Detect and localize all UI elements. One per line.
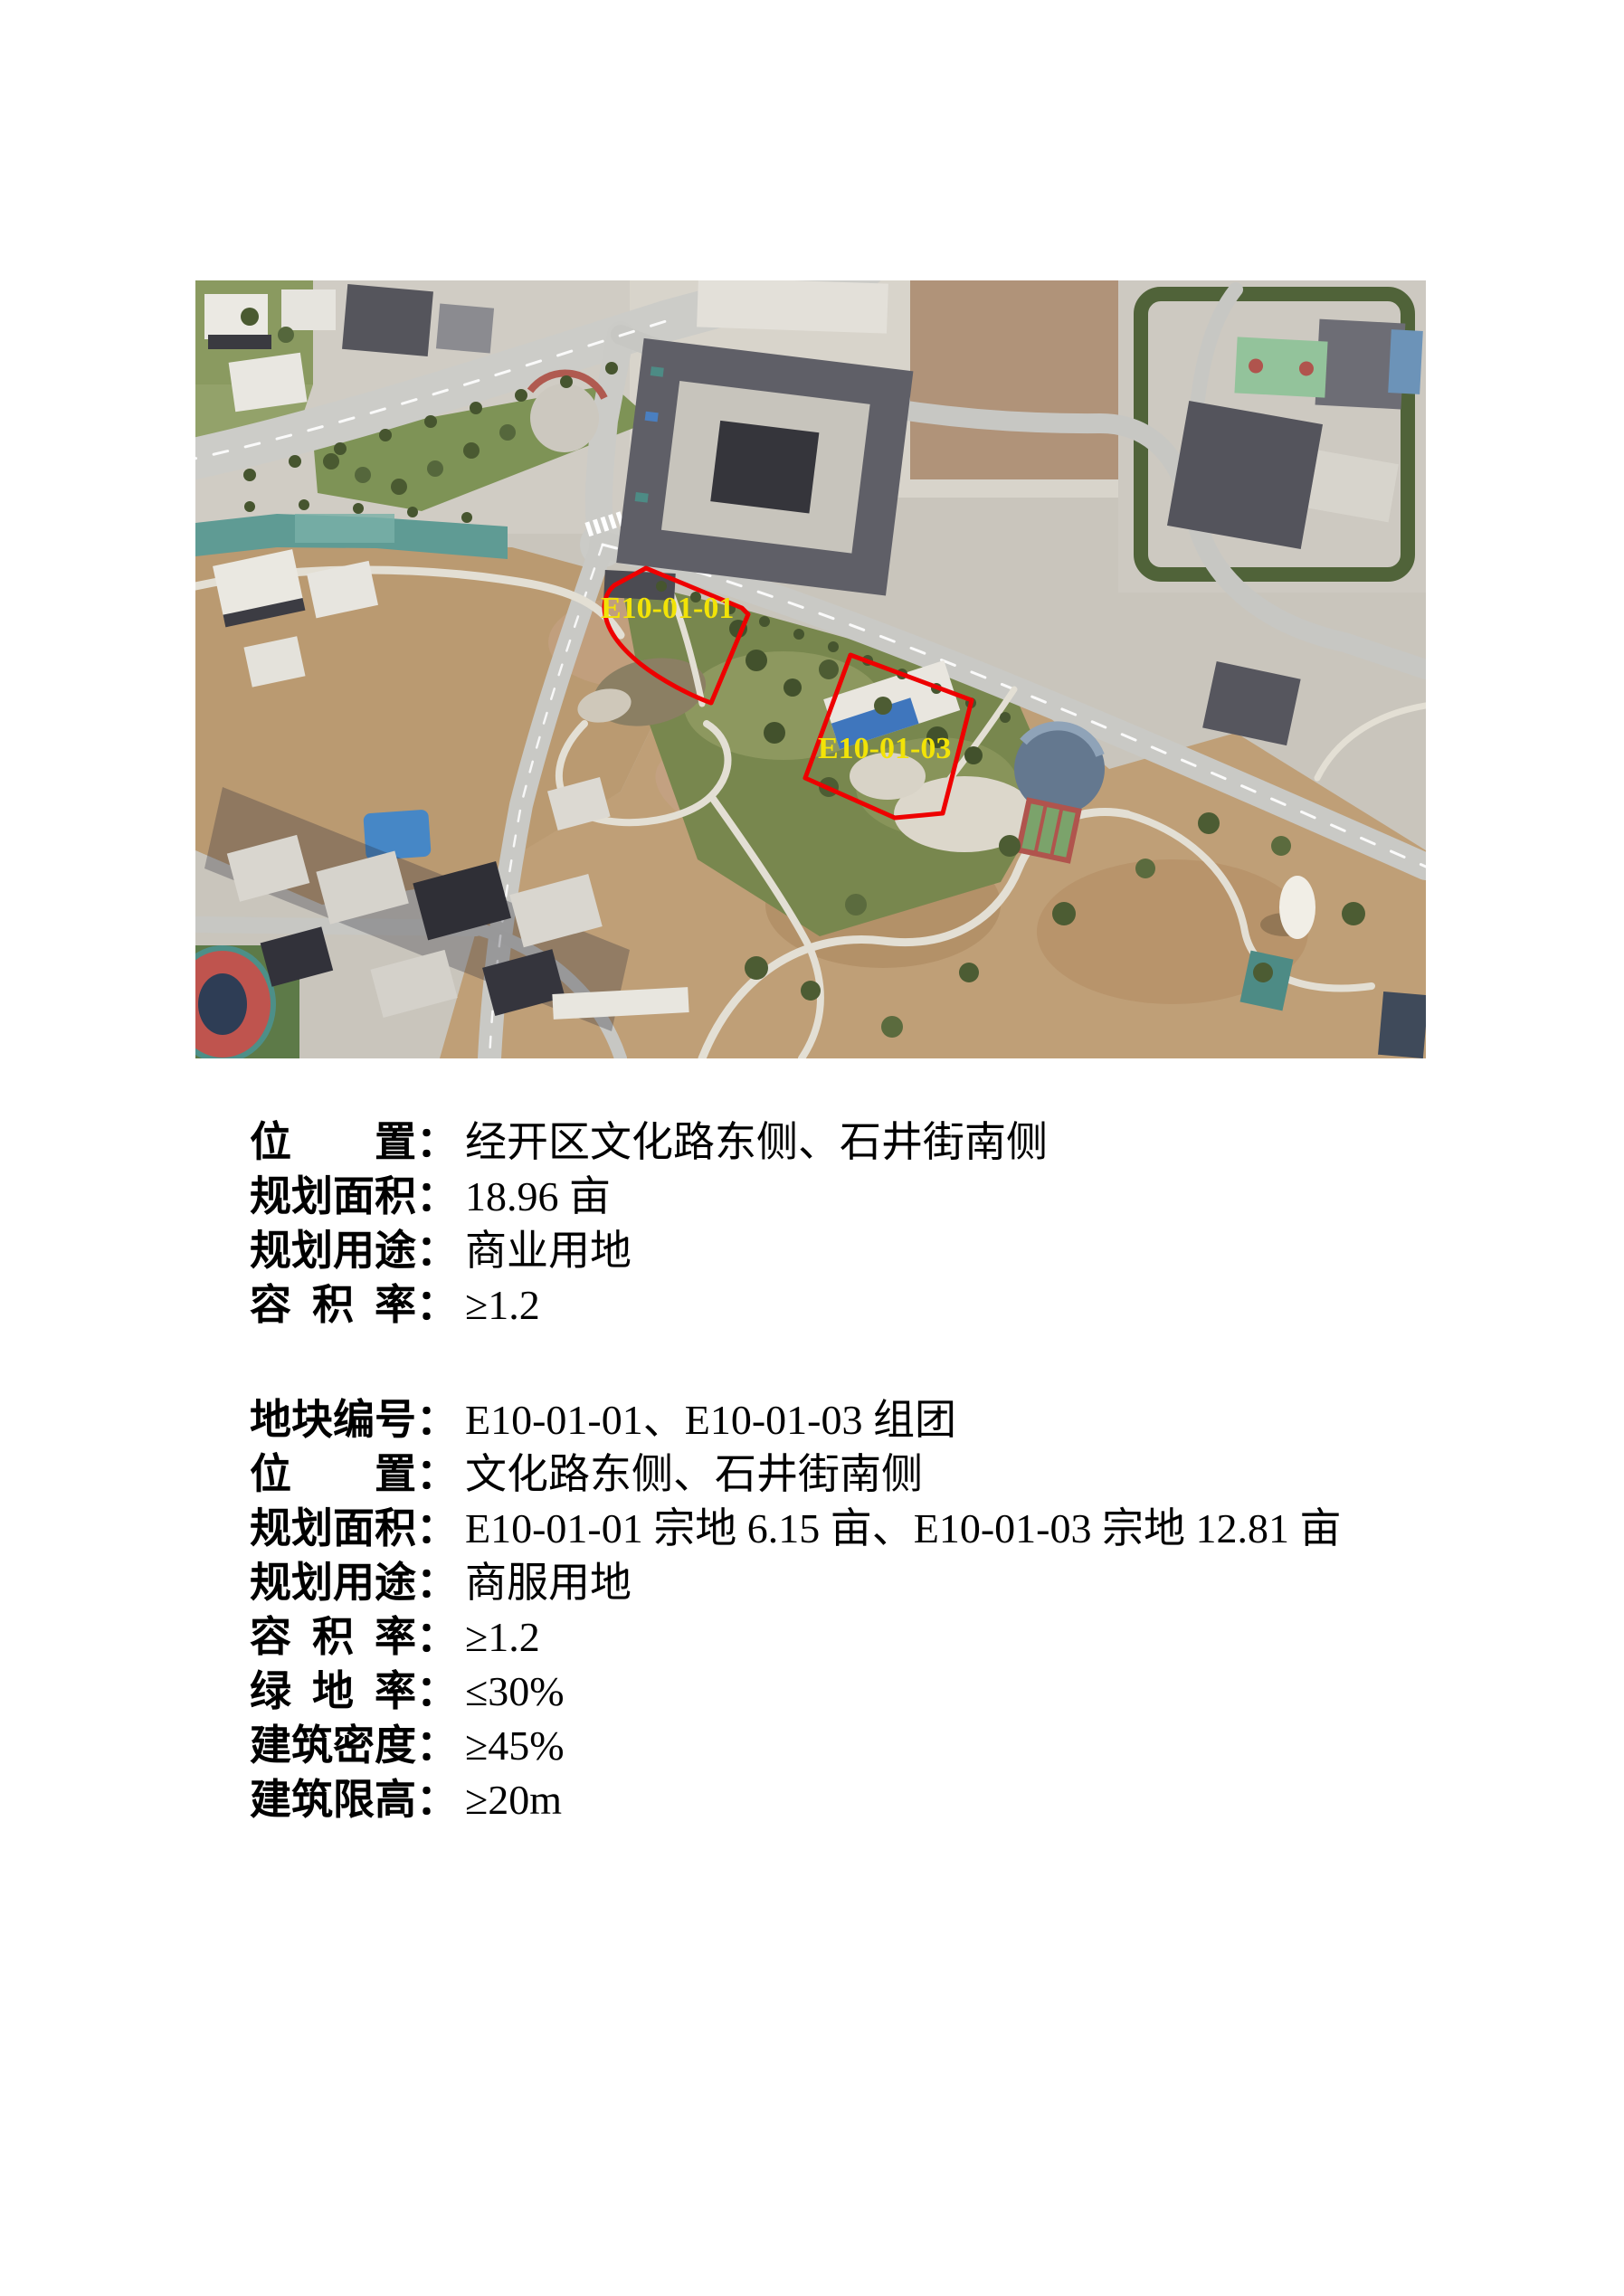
spec-colon: ： <box>416 1451 458 1497</box>
spec-row: 容积率：≥1.2 <box>250 1610 1341 1665</box>
spec-value: 经开区文化路东侧、石井街南侧 <box>465 1119 1048 1165</box>
spec-label: 规划面积 <box>250 1170 416 1224</box>
spec-colon: ： <box>416 1173 458 1219</box>
white-statue <box>1279 876 1315 939</box>
parcel-label-e10-01-01: E10-01-01 <box>601 592 734 625</box>
spec-value: ≥45% <box>465 1722 565 1769</box>
campus-building <box>1167 401 1323 549</box>
spec-row: 绿地率：≤30% <box>250 1665 1341 1719</box>
document-page: E10-01-01 E10-01-03 位置：经开区文化路东侧、石井街南侧 规划… <box>0 0 1624 2296</box>
satellite-photo: E10-01-01 E10-01-03 <box>195 280 1426 1058</box>
spec-row: 位置：经开区文化路东侧、石井街南侧 <box>250 1115 1341 1170</box>
parcel-info-text: 位置：经开区文化路东侧、石井街南侧 规划面积：18.96 亩 规划用途：商业用地… <box>250 1115 1341 1827</box>
spec-label: 容积率 <box>250 1610 416 1665</box>
spec-colon: ： <box>416 1722 458 1769</box>
spec-value: 18.96 亩 <box>465 1173 611 1219</box>
spec-colon: ： <box>416 1614 458 1660</box>
basketball-courts <box>1015 797 1082 864</box>
parcel-group-summary: 位置：经开区文化路东侧、石井街南侧 规划面积：18.96 亩 规划用途：商业用地… <box>250 1115 1341 1333</box>
spec-colon: ： <box>416 1397 458 1443</box>
spec-value: E10-01-01、E10-01-03 组团 <box>465 1397 956 1443</box>
spec-value: ≤30% <box>465 1668 565 1714</box>
spec-value: ≥1.2 <box>465 1614 540 1660</box>
spec-colon: ： <box>416 1505 458 1551</box>
spec-value: E10-01-01 宗地 6.15 亩、E10-01-03 宗地 12.81 亩 <box>465 1505 1341 1551</box>
parcel-label-e10-01-03: E10-01-03 <box>818 732 951 765</box>
spec-label: 位置 <box>250 1447 416 1502</box>
spec-row: 地块编号：E10-01-01、E10-01-03 组团 <box>250 1393 1341 1447</box>
parcel-group-detail: 地块编号：E10-01-01、E10-01-03 组团 位置：文化路东侧、石井街… <box>250 1393 1341 1827</box>
spec-colon: ： <box>416 1668 458 1714</box>
spec-label: 规划面积 <box>250 1502 416 1556</box>
spec-row: 规划面积：18.96 亩 <box>250 1170 1341 1224</box>
spec-value: 商服用地 <box>465 1560 632 1606</box>
satellite-photo-canvas: E10-01-01 E10-01-03 <box>195 280 1426 1058</box>
spec-colon: ： <box>416 1119 458 1165</box>
round-plaza <box>530 384 599 452</box>
spec-row: 容积率：≥1.2 <box>250 1278 1341 1333</box>
spec-value: ≥20m <box>465 1777 562 1823</box>
spec-label: 规划用途 <box>250 1224 416 1278</box>
spec-row: 规划面积：E10-01-01 宗地 6.15 亩、E10-01-03 宗地 12… <box>250 1502 1341 1556</box>
spec-label: 建筑密度 <box>250 1719 416 1773</box>
spec-row: 建筑限高：≥20m <box>250 1773 1341 1827</box>
construction-building <box>616 338 913 596</box>
spec-label: 规划用途 <box>250 1556 416 1610</box>
spec-label: 位置 <box>250 1115 416 1170</box>
sports-court <box>1234 337 1327 397</box>
spec-colon: ： <box>416 1777 458 1823</box>
spec-colon: ： <box>416 1282 458 1328</box>
spec-label: 绿地率 <box>250 1665 416 1719</box>
spec-row: 建筑密度：≥45% <box>250 1719 1341 1773</box>
spec-value: 商业用地 <box>465 1228 632 1274</box>
spec-row: 规划用途：商业用地 <box>250 1224 1341 1278</box>
spec-label: 建筑限高 <box>250 1773 416 1827</box>
spec-value: ≥1.2 <box>465 1282 540 1328</box>
spec-row: 规划用途：商服用地 <box>250 1556 1341 1610</box>
spec-label: 容积率 <box>250 1278 416 1333</box>
spec-colon: ： <box>416 1228 458 1274</box>
spec-colon: ： <box>416 1560 458 1606</box>
spec-label: 地块编号 <box>250 1393 416 1447</box>
spec-row: 位置：文化路东侧、石井街南侧 <box>250 1447 1341 1502</box>
spec-value: 文化路东侧、石井街南侧 <box>465 1451 923 1497</box>
